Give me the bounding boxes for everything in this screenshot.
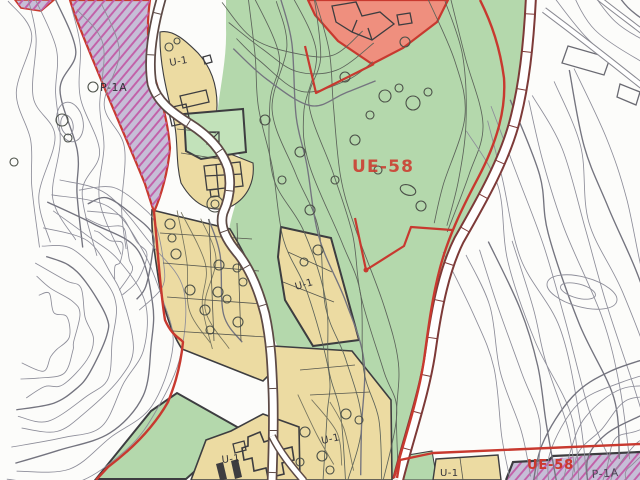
label-u1-bottom-right: U-1 — [440, 468, 459, 479]
label-p1a-top: P-1A — [100, 81, 127, 94]
label-p1a-bottom: P-1A — [591, 466, 619, 480]
label-u1-bottom-left: U-1 — [221, 453, 241, 466]
planning-map-screenshot: P-1A U-1 UE-58 U-1 U-1 U-1 U-1 UE-58 P-1… — [0, 0, 640, 480]
label-ue58-bottom: UE-58 — [527, 458, 574, 473]
zoning-map: P-1A U-1 UE-58 U-1 U-1 U-1 U-1 UE-58 P-1… — [0, 0, 640, 480]
boundary-vertex-dot — [364, 268, 369, 273]
label-ue58-main: UE-58 — [352, 157, 414, 177]
